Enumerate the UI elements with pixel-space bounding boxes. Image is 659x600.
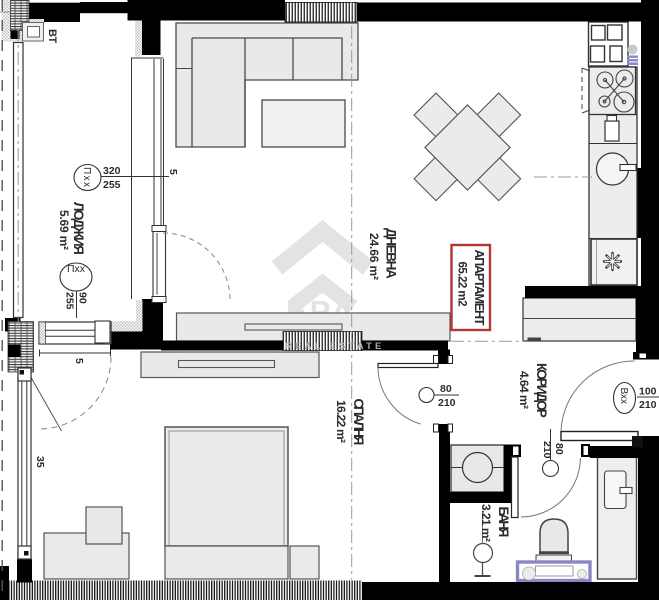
svg-text:ЛОДЖИЯ: ЛОДЖИЯ xyxy=(71,202,86,255)
svg-text:90: 90 xyxy=(77,292,89,304)
svg-text:БАНЯ: БАНЯ xyxy=(496,507,511,538)
svg-text:320: 320 xyxy=(103,165,121,177)
svg-text:100: 100 xyxy=(639,386,657,398)
svg-text:80: 80 xyxy=(553,443,565,455)
svg-text:Пхх: Пхх xyxy=(67,263,86,275)
svg-text:210: 210 xyxy=(541,441,553,459)
svg-text:5: 5 xyxy=(167,169,179,175)
svg-text:Вхх: Вхх xyxy=(618,388,629,405)
svg-text:24.66 m²: 24.66 m² xyxy=(367,233,381,280)
svg-text:REAL ESTATE: REAL ESTATE xyxy=(285,341,385,352)
svg-text:65.22 m2: 65.22 m2 xyxy=(456,262,468,307)
svg-text:210: 210 xyxy=(639,399,657,411)
svg-text:ДНЕВНА: ДНЕВНА xyxy=(384,228,399,279)
svg-text:35: 35 xyxy=(34,456,46,468)
svg-text:КОРИДОР: КОРИДОР xyxy=(534,363,549,418)
svg-text:210: 210 xyxy=(438,397,456,409)
svg-text:5: 5 xyxy=(73,358,85,364)
svg-text:АПАРТАМЕНТ: АПАРТАМЕНТ xyxy=(472,250,486,326)
svg-text:3.21 m²: 3.21 m² xyxy=(479,504,493,542)
svg-text:5.69 m²: 5.69 m² xyxy=(57,210,71,250)
svg-text:ВТ: ВТ xyxy=(46,29,58,44)
svg-text:СПАЛНЯ: СПАЛНЯ xyxy=(351,399,366,446)
svg-text:80: 80 xyxy=(440,383,452,395)
svg-text:Пхх: Пхх xyxy=(81,167,92,187)
svg-text:255: 255 xyxy=(64,292,76,310)
svg-text:4.64 m²: 4.64 m² xyxy=(517,371,531,409)
svg-text:255: 255 xyxy=(103,179,121,191)
svg-text:16.22 m²: 16.22 m² xyxy=(334,400,348,443)
